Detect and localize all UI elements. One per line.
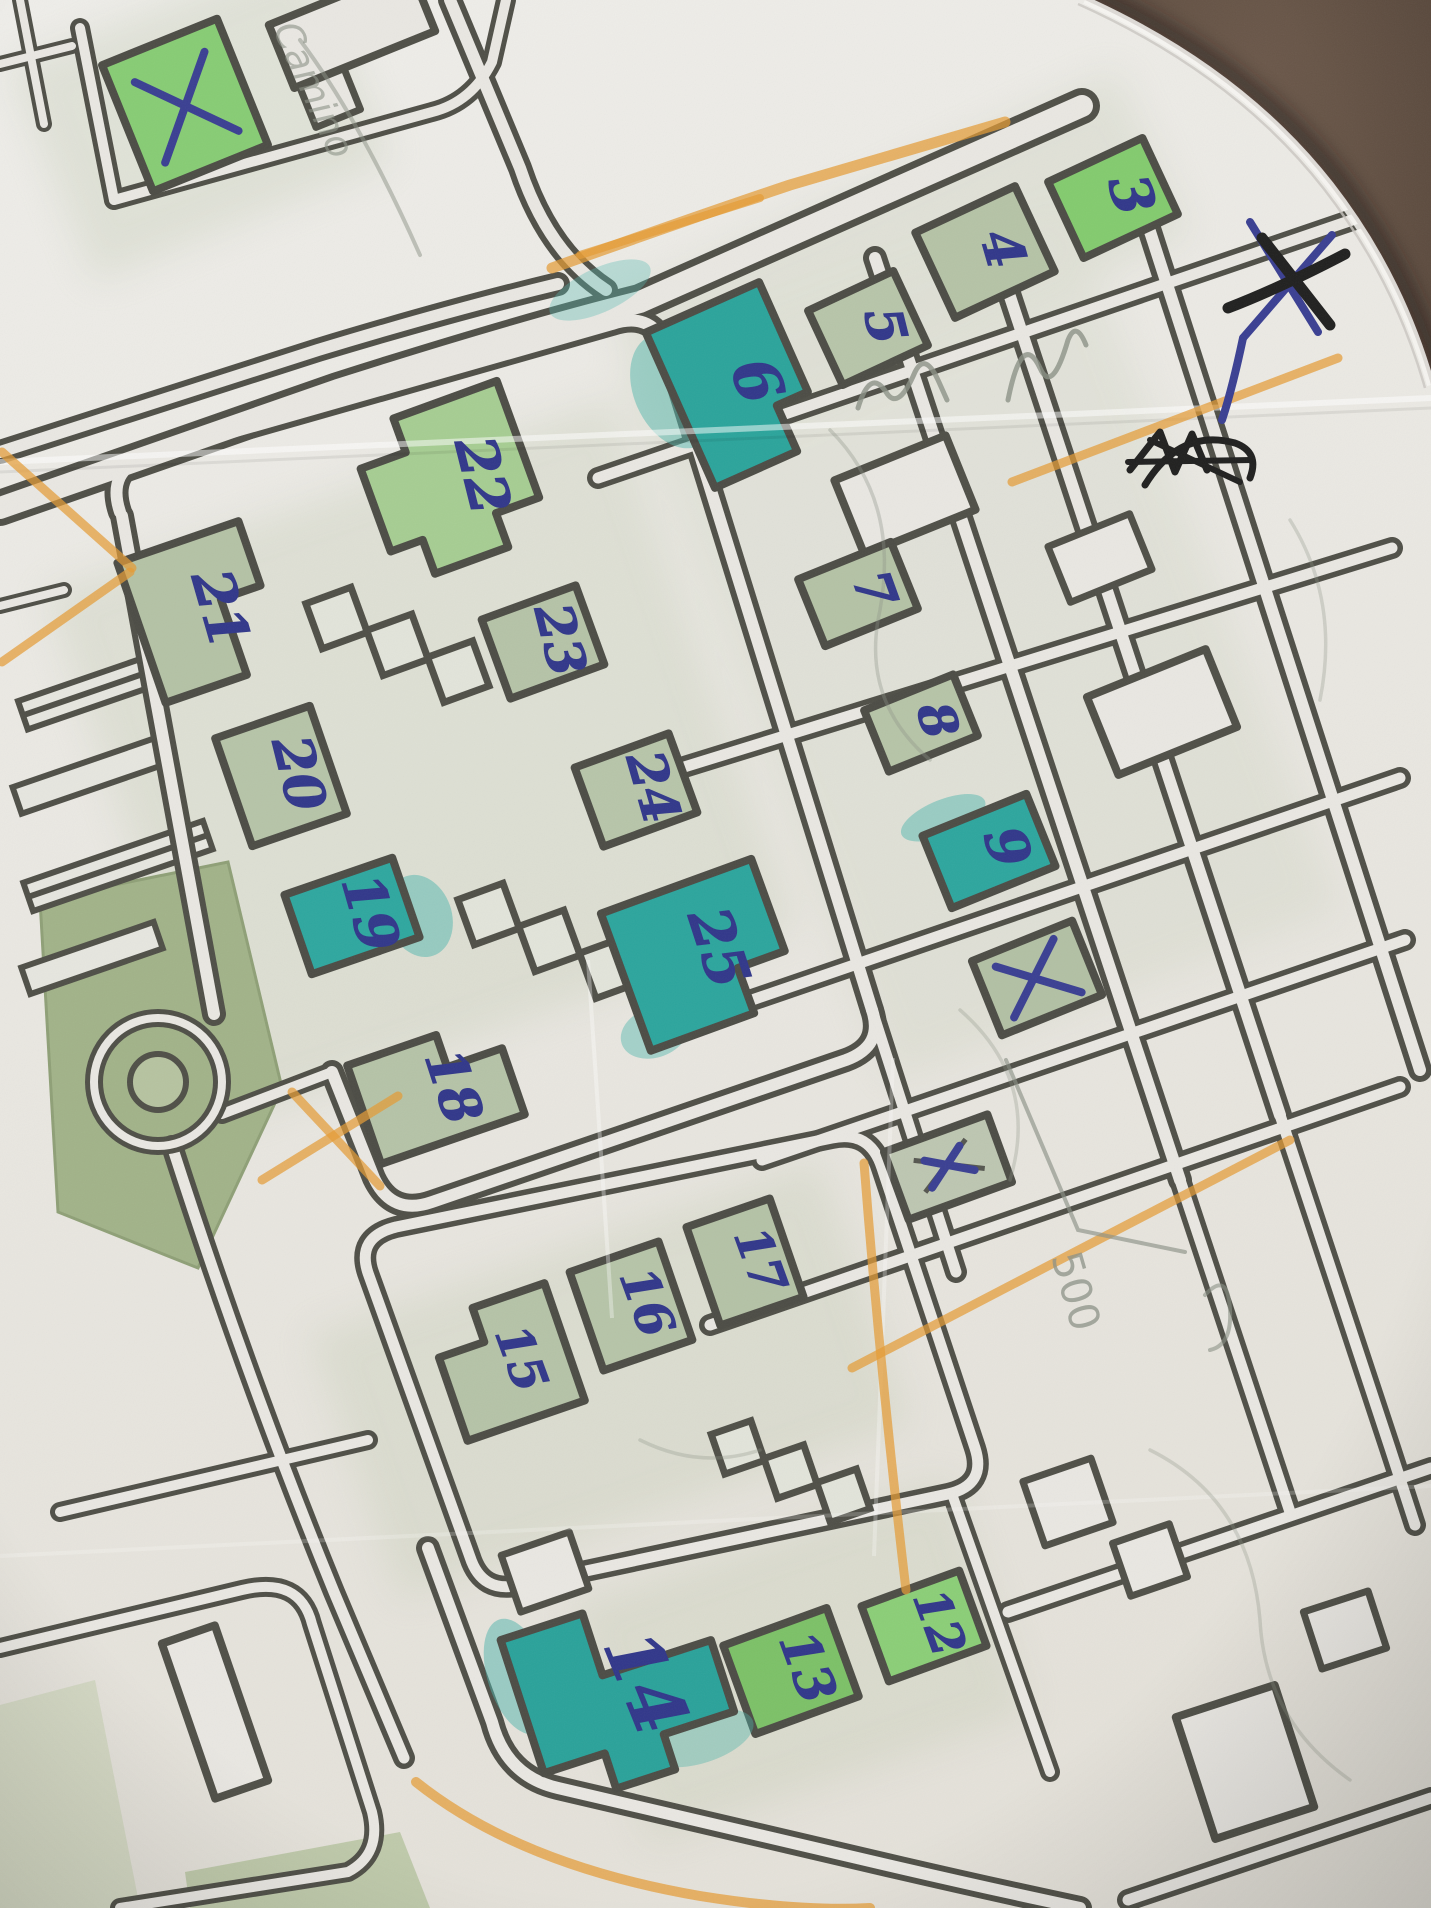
map-photo: Camino 500 3 4 5 6 7 8 9 12 13 14 15 16 … bbox=[0, 0, 1431, 1908]
